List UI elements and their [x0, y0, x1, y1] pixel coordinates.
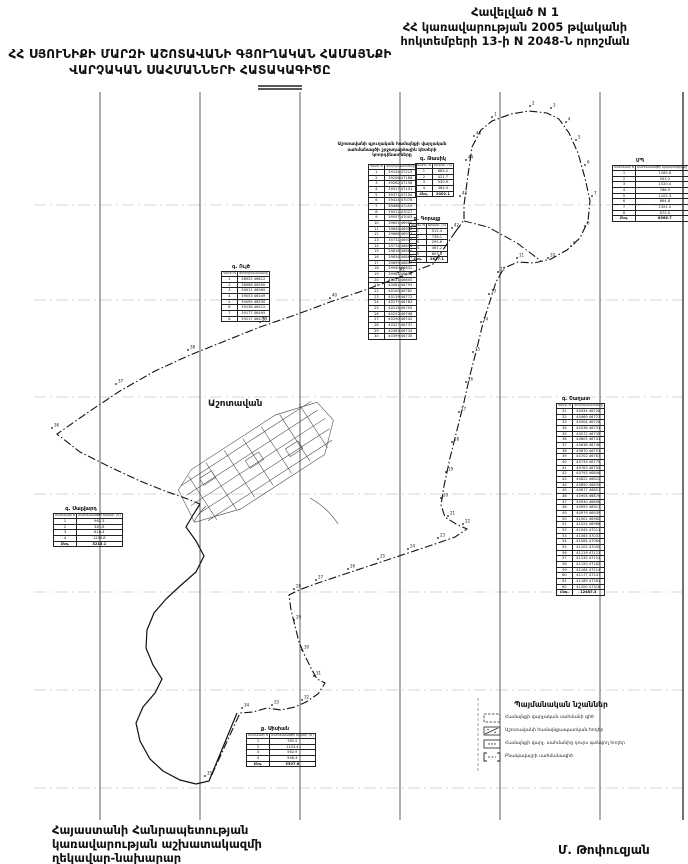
table-row: 3740638 46748 — [557, 442, 605, 448]
table-cell: 40877 46857 — [572, 488, 604, 494]
table-row: 3440538 46731 — [557, 425, 605, 431]
table-total-cell: Ընդ. — [54, 541, 77, 547]
legend-item-label: Համայնքի վարչական սահմանի գիծ — [505, 715, 594, 720]
table-cell: 40793 46806 — [572, 471, 604, 477]
boundary-point-number: 29 — [296, 615, 302, 620]
table-row: 3640605 46741 — [557, 437, 605, 443]
legend-item: Աշոտավանի համայնքապատկան հողեր — [483, 726, 639, 736]
table-total-row: Ընդ.12487.3 — [557, 590, 605, 596]
boundary-point-dot — [451, 227, 453, 229]
boundary-point-number: 8 — [587, 221, 590, 226]
table-total-row: Ընդ.8566.7 — [613, 216, 688, 222]
settlement-plan — [170, 390, 347, 534]
table-cell: 39940 46832 — [384, 266, 416, 272]
table-row: 139154 47215 — [369, 169, 417, 175]
table-row: 239208 47186 — [369, 175, 417, 181]
table-total-row: Ընդ.3397.8 — [247, 761, 316, 767]
table-grid-sisian: Սահմանի NՍահմանագծի երկար. (մ)1785.22110… — [246, 733, 316, 767]
table-header-cell: Սահմանի N — [613, 166, 636, 171]
table-header-cell: Սահմ. N — [410, 224, 427, 229]
boundary-point-number: 10 — [550, 253, 556, 258]
legend-item: Համայնքի վարչ. սահմանից դուրս գտնվող հող… — [483, 739, 639, 749]
boundary-point-number: 37 — [118, 379, 124, 384]
table-total-cell: Ընդ. — [410, 257, 427, 263]
table-row: 4740930 46896 — [557, 499, 605, 505]
boundary-point-number: 14 — [483, 317, 489, 322]
table-row: 2340139 46772 — [369, 294, 417, 300]
table-cell: 41024 46986 — [572, 522, 604, 528]
boundary-point-dot — [575, 139, 577, 141]
table-total-row: Ընդ.2617.1 — [410, 257, 448, 263]
table-row: 539095 46530 — [222, 299, 270, 305]
table-header-cell: Սահմանագծի երկար. (մ) — [77, 514, 123, 519]
table-cell: 40327 46737 — [384, 322, 416, 328]
footer-line-2: կառավարության աշխատակազմի — [52, 837, 262, 851]
table-row: 3340504 46728 — [557, 420, 605, 426]
table-row: 3940702 46767 — [557, 454, 605, 460]
table-header-cell: Երկար. (մ) — [432, 164, 453, 169]
boundary-point-number: 35 — [207, 771, 213, 776]
boundary-point-labels: 1234567891011121314151617181920212223242… — [51, 101, 597, 777]
boundary-point-number: 22 — [465, 519, 471, 524]
table-row: 4440850 46839 — [557, 482, 605, 488]
boundary-point-dot — [329, 297, 331, 299]
table-cell: 39136 46512 — [237, 305, 269, 311]
table-cell: 38968 46590 — [237, 282, 269, 288]
table-total-cell: 2002.1 — [432, 191, 453, 197]
table-total-cell: 3397.8 — [270, 761, 316, 767]
boundary-point-number: 25 — [380, 554, 386, 559]
boundary-point-dot — [488, 293, 490, 295]
table-cell: 40504 46728 — [572, 420, 604, 426]
table-row: 339262 47158 — [369, 181, 417, 187]
boundary-point-dot — [547, 257, 549, 259]
table-title-shaghat: գ. Շաղատ — [556, 396, 596, 402]
table-row: 639136 46512 — [222, 305, 270, 311]
table-row: 2540215 46755 — [369, 305, 417, 311]
boundary-point-dot — [591, 195, 593, 197]
table-title-tasik: գ. Թասիկ — [415, 156, 451, 162]
legend-items: Համայնքի վարչական սահմանի գիծԱշոտավանի հ… — [483, 713, 639, 762]
table-title-mp: ՄՊ — [612, 158, 668, 164]
boundary-point-dot — [473, 135, 475, 137]
table-cell: 39011 46569 — [237, 288, 269, 294]
table-cell: 40955 46917 — [572, 505, 604, 511]
map-table-mp: ՄՊՍահմանի NՍահմանագծի երկարությունը (մ)1… — [612, 158, 668, 222]
boundary-point-dot — [565, 121, 567, 123]
boundary-point-dot — [497, 271, 499, 273]
legend-item: Համայնքի վարչական սահմանի գիծ — [483, 713, 639, 723]
table-cell: 40021 46805 — [384, 277, 416, 283]
boundary-point-dot — [445, 471, 447, 473]
table-total-cell: 8566.7 — [636, 216, 688, 222]
boundary-point-number: 36 — [54, 423, 60, 428]
table-cell: 39424 47078 — [384, 198, 416, 204]
bracket-box-icon — [483, 752, 501, 762]
boundary-point-number: 15 — [475, 347, 481, 352]
boundary-point-number: 33 — [274, 700, 280, 705]
table-cell: 40605 46741 — [572, 437, 604, 443]
boundary-point-number: 43 — [462, 191, 468, 196]
boundary-point-number: 7 — [594, 191, 597, 196]
boundary-point-dot — [301, 649, 303, 651]
map-table-gorayk: գ. ԳորայքՍահմ. NԵրկար. (մ)1512.42738.132… — [409, 216, 445, 263]
boundary-point-dot — [458, 411, 460, 413]
table-row: 6241200 47316 — [557, 584, 605, 590]
boundary-point-dot — [293, 588, 295, 590]
table-cell: 41135 47151 — [572, 556, 604, 562]
table-grid-gorayk: Սահմ. NԵրկար. (մ)1512.42738.13295.64467.… — [409, 223, 448, 263]
hatch-box-icon — [483, 726, 501, 736]
table-header-cell: Սահմ. N — [416, 164, 433, 169]
table-row: 3140434 46728 — [557, 408, 605, 414]
legend-item-label: Աշոտավանի համայնքապատկան հողեր — [505, 728, 603, 733]
table-row: 4640904 46876 — [557, 493, 605, 499]
boundary-point-number: 31 — [316, 671, 322, 676]
table-row: 839512 47027 — [369, 209, 417, 215]
boundary-point-number: 17 — [461, 407, 467, 412]
table-row: 339011 46569 — [222, 288, 270, 294]
boundary-point-dot — [459, 195, 461, 197]
legend-item-label: Բնակավայրի սահմանագիծ — [505, 754, 573, 759]
boundary-point-number: 4 — [568, 117, 571, 122]
table-row: 4540877 46857 — [557, 488, 605, 494]
boundary-point-dot — [529, 105, 531, 107]
map-table-uyts: գ. ՈւյծԿետի NԿոորդինատները138925 4661223… — [221, 264, 261, 322]
boundary-point-dot — [584, 225, 586, 227]
table-cell: 40572 46735 — [572, 431, 604, 437]
legend: Պայմանական նշաններ Համայնքի վարչական սահ… — [483, 700, 639, 765]
table-row: 5741135 47151 — [557, 556, 605, 562]
boundary-point-dot — [377, 558, 379, 560]
table-header-cell: Սահմանի N — [54, 514, 77, 519]
table-row: 2140061 46793 — [369, 283, 417, 289]
table-row: 3040399 46730 — [369, 334, 417, 340]
dash-box-icon — [483, 713, 501, 723]
boundary-point-number: 11 — [519, 253, 525, 258]
boundary-point-dot — [516, 257, 518, 259]
table-row: 5441084 47064 — [557, 539, 605, 545]
boundary-point-number: 19 — [448, 467, 454, 472]
table-header-cell: Սահմանի N — [247, 734, 270, 739]
boundary-point-dot — [204, 775, 206, 777]
table-cell: 41200 47316 — [572, 584, 604, 590]
table-total-cell: 12487.3 — [572, 590, 604, 596]
boundary-point-dot — [465, 159, 467, 161]
table-cell: 8 — [222, 316, 238, 322]
table-cell: 41065 47037 — [572, 533, 604, 539]
table-row: 839217 46479 — [222, 316, 270, 322]
table-row: 739177 46495 — [222, 310, 270, 316]
boundary-point-number: 9 — [573, 241, 576, 246]
table-cell: 39053 46549 — [237, 293, 269, 299]
boundary-southwest — [136, 504, 237, 784]
table-cell: 40670 46757 — [572, 448, 604, 454]
boundary-point-dot — [313, 675, 315, 677]
boundary-point-number: 28 — [296, 584, 302, 589]
table-row: 2440177 46763 — [369, 300, 417, 306]
table-row: 4240793 46806 — [557, 471, 605, 477]
table-total-cell: Ընդ. — [416, 191, 433, 197]
table-cell: 30 — [369, 334, 385, 340]
settlement-roads — [194, 498, 338, 524]
table-cell: 41164 47214 — [572, 567, 604, 573]
table-row: 238968 46590 — [222, 282, 270, 288]
boundary-inner-segment — [464, 221, 541, 261]
table-cell: 40702 46767 — [572, 454, 604, 460]
table-cell: 40399 46730 — [384, 334, 416, 340]
boundary-point-number: 44 — [468, 155, 474, 160]
table-title-gorayk: գ. Գորայք — [409, 216, 445, 222]
map-table-tasik: գ. ԹասիկՍահմ. NԵրկար. (մ)1685.22421.7353… — [415, 156, 451, 197]
table-cell: 39217 46479 — [237, 316, 269, 322]
table-row: 138925 46612 — [222, 276, 270, 282]
boundary-point-dot — [187, 349, 189, 351]
boundary-point-dot — [491, 116, 493, 118]
table-grid-mp: Սահմանի NՍահմանագծի երկարությունը (մ)112… — [612, 165, 688, 222]
table-header-cell: Կոորդինատները — [237, 272, 269, 277]
table-cell: 41119 47121 — [572, 550, 604, 556]
table-row: 5341065 47037 — [557, 533, 605, 539]
table-total-row: Ընդ.2002.1 — [416, 191, 454, 197]
table-cell: 41045 47011 — [572, 527, 604, 533]
table-cell: 40363 46733 — [384, 328, 416, 334]
table-header-cell: Սահմանագծի երկարությունը (մ) — [636, 166, 688, 171]
table-row: 4940979 46939 — [557, 510, 605, 516]
table-header-cell: Կետի N — [222, 272, 238, 277]
boundary-point-dot — [301, 699, 303, 701]
table-cell: 40215 46755 — [384, 305, 416, 311]
table-cell: 40904 46876 — [572, 493, 604, 499]
table-row: 2840327 46737 — [369, 322, 417, 328]
table-row: 5241045 47011 — [557, 527, 605, 533]
boundary-point-number: 3 — [553, 103, 556, 108]
table-row: 5541102 47092 — [557, 544, 605, 550]
table-row: 5641119 47121 — [557, 550, 605, 556]
table-cell: 40822 46822 — [572, 476, 604, 482]
table-cell: 40290 46742 — [384, 317, 416, 323]
table-cell: 40139 46772 — [384, 294, 416, 300]
table-row: 3540572 46735 — [557, 431, 605, 437]
table-row: 4840955 46917 — [557, 505, 605, 511]
map-table-sisian: ք. ՍիսիանՍահմանի NՍահմանագծի երկար. (մ)1… — [246, 726, 304, 767]
boundary-point-number: 26 — [350, 564, 356, 569]
boundary-point-number: 20 — [443, 493, 449, 498]
boundary-point-number: 34 — [244, 703, 250, 708]
footer-signatory-block: Հայաստանի Հանրապետության կառավարության ա… — [52, 823, 262, 864]
table-cell: 40850 46839 — [572, 482, 604, 488]
boundary-point-number: 2 — [532, 101, 535, 106]
boundary-point-number: 13 — [491, 289, 497, 294]
boundary-point-dot — [570, 245, 572, 247]
legend-title: Պայմանական նշաններ — [483, 700, 639, 709]
boundary-point-dot — [315, 579, 317, 581]
table-total-cell: Ընդ. — [613, 216, 636, 222]
boundary-point-number: 21 — [450, 511, 456, 516]
table-cell: 41150 47182 — [572, 561, 604, 567]
table-cell: 41177 47247 — [572, 573, 604, 579]
table-cell: 39512 47027 — [384, 209, 416, 215]
map-table-coords-main: Կետի NԿոորդինատները139154 47215239208 47… — [368, 164, 404, 340]
boundary-point-dot — [115, 383, 117, 385]
footer-line-3: ղեկավար-նախարար — [52, 851, 262, 864]
boundary-point-number: 12 — [500, 267, 506, 272]
boundary-point-number: 5 — [578, 135, 581, 140]
table-cell: 40253 46748 — [384, 311, 416, 317]
table-cell: 40100 46782 — [384, 288, 416, 294]
scanned-map-sheet: Հավելված N 1 ՀՀ կառավարության 2005 թվակա… — [0, 0, 688, 864]
table-total-cell: Ընդ. — [557, 590, 573, 596]
table-title-salvard: գ. Սալվարդ — [53, 506, 109, 512]
table-grid-uyts: Կետի NԿոորդինատները138925 46612238968 46… — [221, 271, 270, 322]
boundary-point-dot — [550, 107, 552, 109]
table-cell: 41189 47281 — [572, 579, 604, 585]
table-cell: 39154 47215 — [384, 169, 416, 175]
boundary-point-number: 23 — [440, 533, 446, 538]
table-row: 1939981 46818 — [369, 271, 417, 277]
boundary-point-dot — [584, 164, 586, 166]
table-cell: 39262 47158 — [384, 181, 416, 187]
table-cell: 39468 47052 — [384, 203, 416, 209]
table-cell: 39317 47131 — [384, 186, 416, 192]
boundary-point-number: 18 — [454, 437, 460, 442]
boundary-point-number: 30 — [304, 645, 310, 650]
table-cell: 39981 46818 — [384, 271, 416, 277]
table-total-cell: Ընդ. — [247, 761, 270, 767]
boundary-point-number: 42 — [454, 223, 460, 228]
table-cell: 41002 46962 — [572, 516, 604, 522]
boundary-point-dot — [462, 523, 464, 525]
table-header-cell: Երկար. (մ) — [426, 224, 447, 229]
table-row: 5141024 46986 — [557, 522, 605, 528]
boundary-point-dot — [440, 497, 442, 499]
table-cell: 39095 46530 — [237, 299, 269, 305]
table-row: 2740290 46742 — [369, 317, 417, 323]
boundary-point-dot — [271, 704, 273, 706]
title-underline — [258, 86, 302, 89]
table-cell: 39371 47104 — [384, 192, 416, 198]
table-row: 2940363 46733 — [369, 328, 417, 334]
table-title-sisian: ք. Սիսիան — [246, 726, 304, 732]
table-grid-shaghat: Կետի NԿոորդինատները3140434 467283240469 … — [556, 403, 605, 596]
table-row: 4140763 46792 — [557, 465, 605, 471]
boundary-point-dot — [465, 381, 467, 383]
map-table-salvard: գ. ՍալվարդՍահմանի NՍահմանագծի երկար. (մ)… — [53, 506, 109, 547]
table-cell: 41102 47092 — [572, 544, 604, 550]
table-header-cell: Կետի N — [369, 165, 385, 170]
boundary-point-number: 32 — [304, 695, 310, 700]
table-row: 4340822 46822 — [557, 476, 605, 482]
table-row: 2640253 46748 — [369, 311, 417, 317]
table-cell: 40434 46728 — [572, 408, 604, 414]
table-cell: 40538 46731 — [572, 425, 604, 431]
table-cell: 40930 46896 — [572, 499, 604, 505]
boundary-point-dot — [51, 427, 53, 429]
settlement-label: Աշոտավան — [208, 399, 262, 409]
table-header-cell: Սահմանագծի երկար. (մ) — [270, 734, 316, 739]
boundary-point-dot — [407, 548, 409, 550]
boundary-point-dot — [437, 537, 439, 539]
legend-item-label: Համայնքի վարչ. սահմանից դուրս գտնվող հող… — [505, 741, 625, 746]
signature-name: Մ. Թոփուզյան — [558, 843, 650, 857]
table-row: 3840670 46757 — [557, 448, 605, 454]
table-total-cell: 3213.1 — [77, 541, 123, 547]
table-header-cell: Կետի N — [557, 404, 573, 409]
table-cell: 40469 46727 — [572, 414, 604, 420]
table-row: 5941164 47214 — [557, 567, 605, 573]
table-grid-tasik: Սահմ. NԵրկար. (մ)1685.22421.73530.94364.… — [415, 163, 454, 197]
table-cell: 39177 46495 — [237, 310, 269, 316]
boundary-point-number: 45 — [476, 131, 482, 136]
boundary-point-dot — [447, 515, 449, 517]
table-grid-salvard: Սահմանի NՍահմանագծի երկար. (մ)1962.32381… — [53, 513, 123, 547]
table-row: 6041177 47247 — [557, 573, 605, 579]
boundary-point-number: 6 — [587, 160, 590, 165]
table-row: 639424 47078 — [369, 198, 417, 204]
boundary-point-dot — [241, 707, 243, 709]
boundary-point-number: 38 — [190, 345, 196, 350]
boundary-point-dot — [472, 351, 474, 353]
table-cell: 40638 46748 — [572, 442, 604, 448]
boundary-point-dot — [293, 619, 295, 621]
table-row: 1839940 46832 — [369, 266, 417, 272]
table-cell: 40177 46763 — [384, 300, 416, 306]
table-row: 439317 47131 — [369, 186, 417, 192]
footer-line-1: Հայաստանի Հանրապետության — [52, 823, 262, 837]
table-row: 5841150 47182 — [557, 561, 605, 567]
boundary-point-number: 40 — [332, 293, 338, 298]
boundary-point-number: 27 — [318, 575, 324, 580]
boundary-point-dot — [480, 321, 482, 323]
table-cell: 40733 46779 — [572, 459, 604, 465]
table-header-cell: Կոորդինատները — [384, 165, 416, 170]
table-row: 5041002 46962 — [557, 516, 605, 522]
table-cell: 40061 46793 — [384, 283, 416, 289]
table-row: 2240100 46782 — [369, 288, 417, 294]
table-cell: 40979 46939 — [572, 510, 604, 516]
table-row: 2040021 46805 — [369, 277, 417, 283]
table-cell: 41084 47064 — [572, 539, 604, 545]
table-title-uyts: գ. Ույծ — [221, 264, 261, 270]
table-row: 4040733 46779 — [557, 459, 605, 465]
boundary-point-dot — [451, 441, 453, 443]
table-cell: 39208 47186 — [384, 175, 416, 181]
boundary-point-number: 16 — [468, 377, 474, 382]
table-cell: 40763 46792 — [572, 465, 604, 471]
table-row: 3240469 46727 — [557, 414, 605, 420]
boundary-point-number: 24 — [410, 544, 416, 549]
table-total-cell: 2617.1 — [426, 257, 447, 263]
map-table-shaghat: գ. ՇաղատԿետի NԿոորդինատները3140434 46728… — [556, 396, 596, 596]
boundary-point-number: 1 — [494, 112, 497, 117]
table-header-cell: Կոորդինատները — [572, 404, 604, 409]
table-cell: 38925 46612 — [237, 276, 269, 282]
boundary-point-dot — [347, 568, 349, 570]
dot-box-icon — [483, 739, 501, 749]
table-row: 539371 47104 — [369, 192, 417, 198]
legend-item: Բնակավայրի սահմանագիծ — [483, 752, 639, 762]
table-row: 6141189 47281 — [557, 579, 605, 585]
table-row: 739468 47052 — [369, 203, 417, 209]
table-total-row: Ընդ.3213.1 — [54, 541, 123, 547]
table-row: 439053 46549 — [222, 293, 270, 299]
